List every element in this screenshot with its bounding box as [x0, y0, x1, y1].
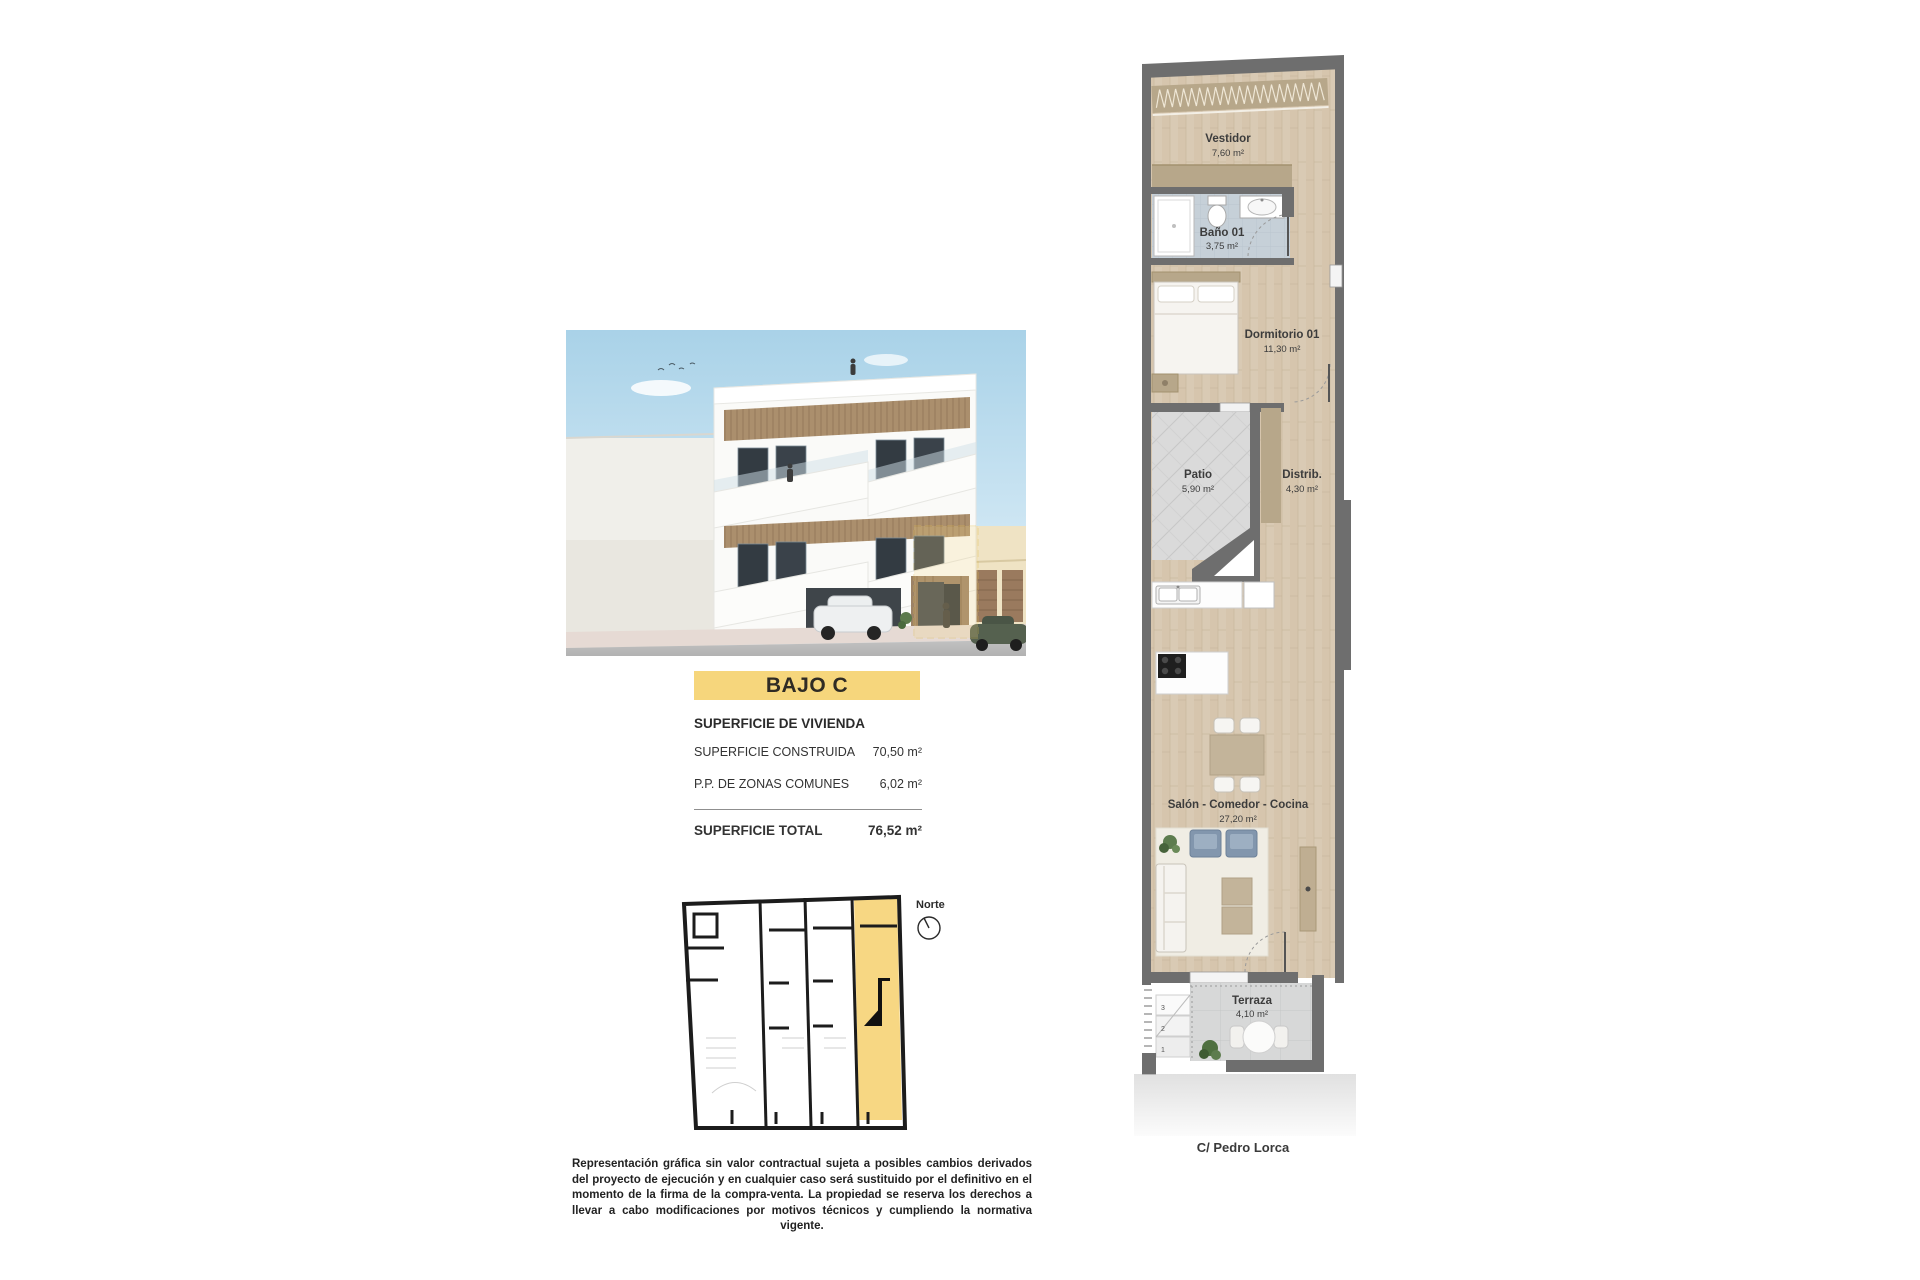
room-area: 11,30 m² — [1264, 344, 1301, 355]
bed-symbol — [1152, 272, 1240, 392]
room-area: 3,75 m² — [1206, 241, 1238, 252]
room-name: Baño 01 — [1200, 227, 1245, 239]
step-number: 2 — [1161, 1026, 1165, 1033]
room-area: 27,20 m² — [1219, 814, 1257, 825]
row-label: P.P. DE ZONAS COMUNES — [694, 777, 849, 791]
terrace-steps: 3 2 1 — [1156, 995, 1190, 1057]
wall — [1250, 403, 1260, 531]
room-name: Dormitorio 01 — [1245, 329, 1320, 341]
room-name: Vestidor — [1205, 133, 1251, 145]
table-row: P.P. DE ZONAS COMUNES 6,02 m² — [694, 777, 922, 791]
wall — [1248, 972, 1298, 983]
unit-title: BAJO C — [766, 674, 848, 698]
wall — [1144, 403, 1220, 412]
room-area: 4,30 m² — [1286, 484, 1318, 495]
kitchen-island — [1156, 652, 1228, 694]
table-total-row: SUPERFICIE TOTAL 76,52 m² — [694, 823, 922, 838]
room-name: Salón - Comedor - Cocina — [1168, 799, 1309, 811]
wall-right — [1335, 61, 1344, 983]
room-name: Terraza — [1232, 995, 1273, 1007]
row-value: 6,02 m² — [880, 777, 922, 791]
brochure-page: BAJO C SUPERFICIE DE VIVIENDA SUPERFICIE… — [0, 0, 1920, 1280]
row-label: SUPERFICIE CONSTRUIDA — [694, 745, 855, 759]
sink-symbol — [1240, 196, 1284, 218]
key-plan-faint-lines — [706, 1038, 846, 1093]
hall-cupboard — [1261, 408, 1281, 523]
terrace-table-set — [1230, 1021, 1288, 1053]
total-value: 76,52 m² — [868, 823, 922, 838]
street-wash — [1134, 1074, 1356, 1136]
neighbor-building-left — [566, 434, 714, 648]
wall — [1144, 187, 1294, 194]
row-value: 70,50 m² — [873, 745, 922, 759]
room-area: 4,10 m² — [1236, 1009, 1268, 1020]
wall-stub — [1142, 1053, 1156, 1075]
total-label: SUPERFICIE TOTAL — [694, 823, 823, 838]
surface-table: SUPERFICIE DE VIVIENDA SUPERFICIE CONSTR… — [694, 716, 922, 838]
wall-right-jog — [1344, 500, 1351, 670]
room-name: Patio — [1184, 469, 1212, 481]
sofa-symbol — [1156, 864, 1186, 952]
sliding-door-symbol — [1190, 972, 1248, 983]
wall — [1144, 258, 1294, 265]
unit-highlight-outline — [914, 526, 978, 638]
step-number: 1 — [1161, 1047, 1165, 1054]
step-number: 3 — [1161, 1005, 1165, 1012]
building-render — [566, 330, 1026, 656]
floor-plan: Vestidor 7,60 m² Baño 01 3,75 m² — [1130, 50, 1360, 1160]
north-indicator: Norte — [916, 899, 945, 939]
shower-symbol — [1154, 196, 1194, 256]
window-symbol — [1220, 403, 1250, 412]
toilet-symbol — [1208, 196, 1226, 227]
room-area: 5,90 m² — [1182, 484, 1214, 495]
surface-table-header: SUPERFICIE DE VIVIENDA — [694, 716, 922, 731]
appliance-symbol — [1244, 582, 1274, 608]
wall-terrace-bottom — [1226, 1060, 1324, 1072]
tv-board — [1300, 847, 1316, 931]
unit-title-banner: BAJO C — [694, 671, 920, 700]
wall — [1282, 187, 1294, 217]
room-area: 7,60 m² — [1212, 148, 1244, 159]
street-name: C/ Pedro Lorca — [1197, 1140, 1290, 1155]
north-label: Norte — [916, 899, 945, 911]
hatch-strip — [1144, 990, 1152, 1054]
kitchen-counter — [1152, 582, 1242, 608]
table-row: SUPERFICIE CONSTRUIDA 70,50 m² — [694, 745, 922, 759]
legal-disclaimer: Representación gráfica sin valor contrac… — [572, 1157, 1032, 1235]
wardrobe-symbol — [1152, 165, 1292, 187]
wall-terrace-right — [1312, 975, 1324, 1063]
table-divider — [694, 809, 922, 810]
wall-left — [1142, 70, 1151, 985]
room-name: Distrib. — [1282, 469, 1322, 481]
key-plan: Norte — [672, 888, 972, 1138]
window-symbol — [1330, 265, 1342, 287]
